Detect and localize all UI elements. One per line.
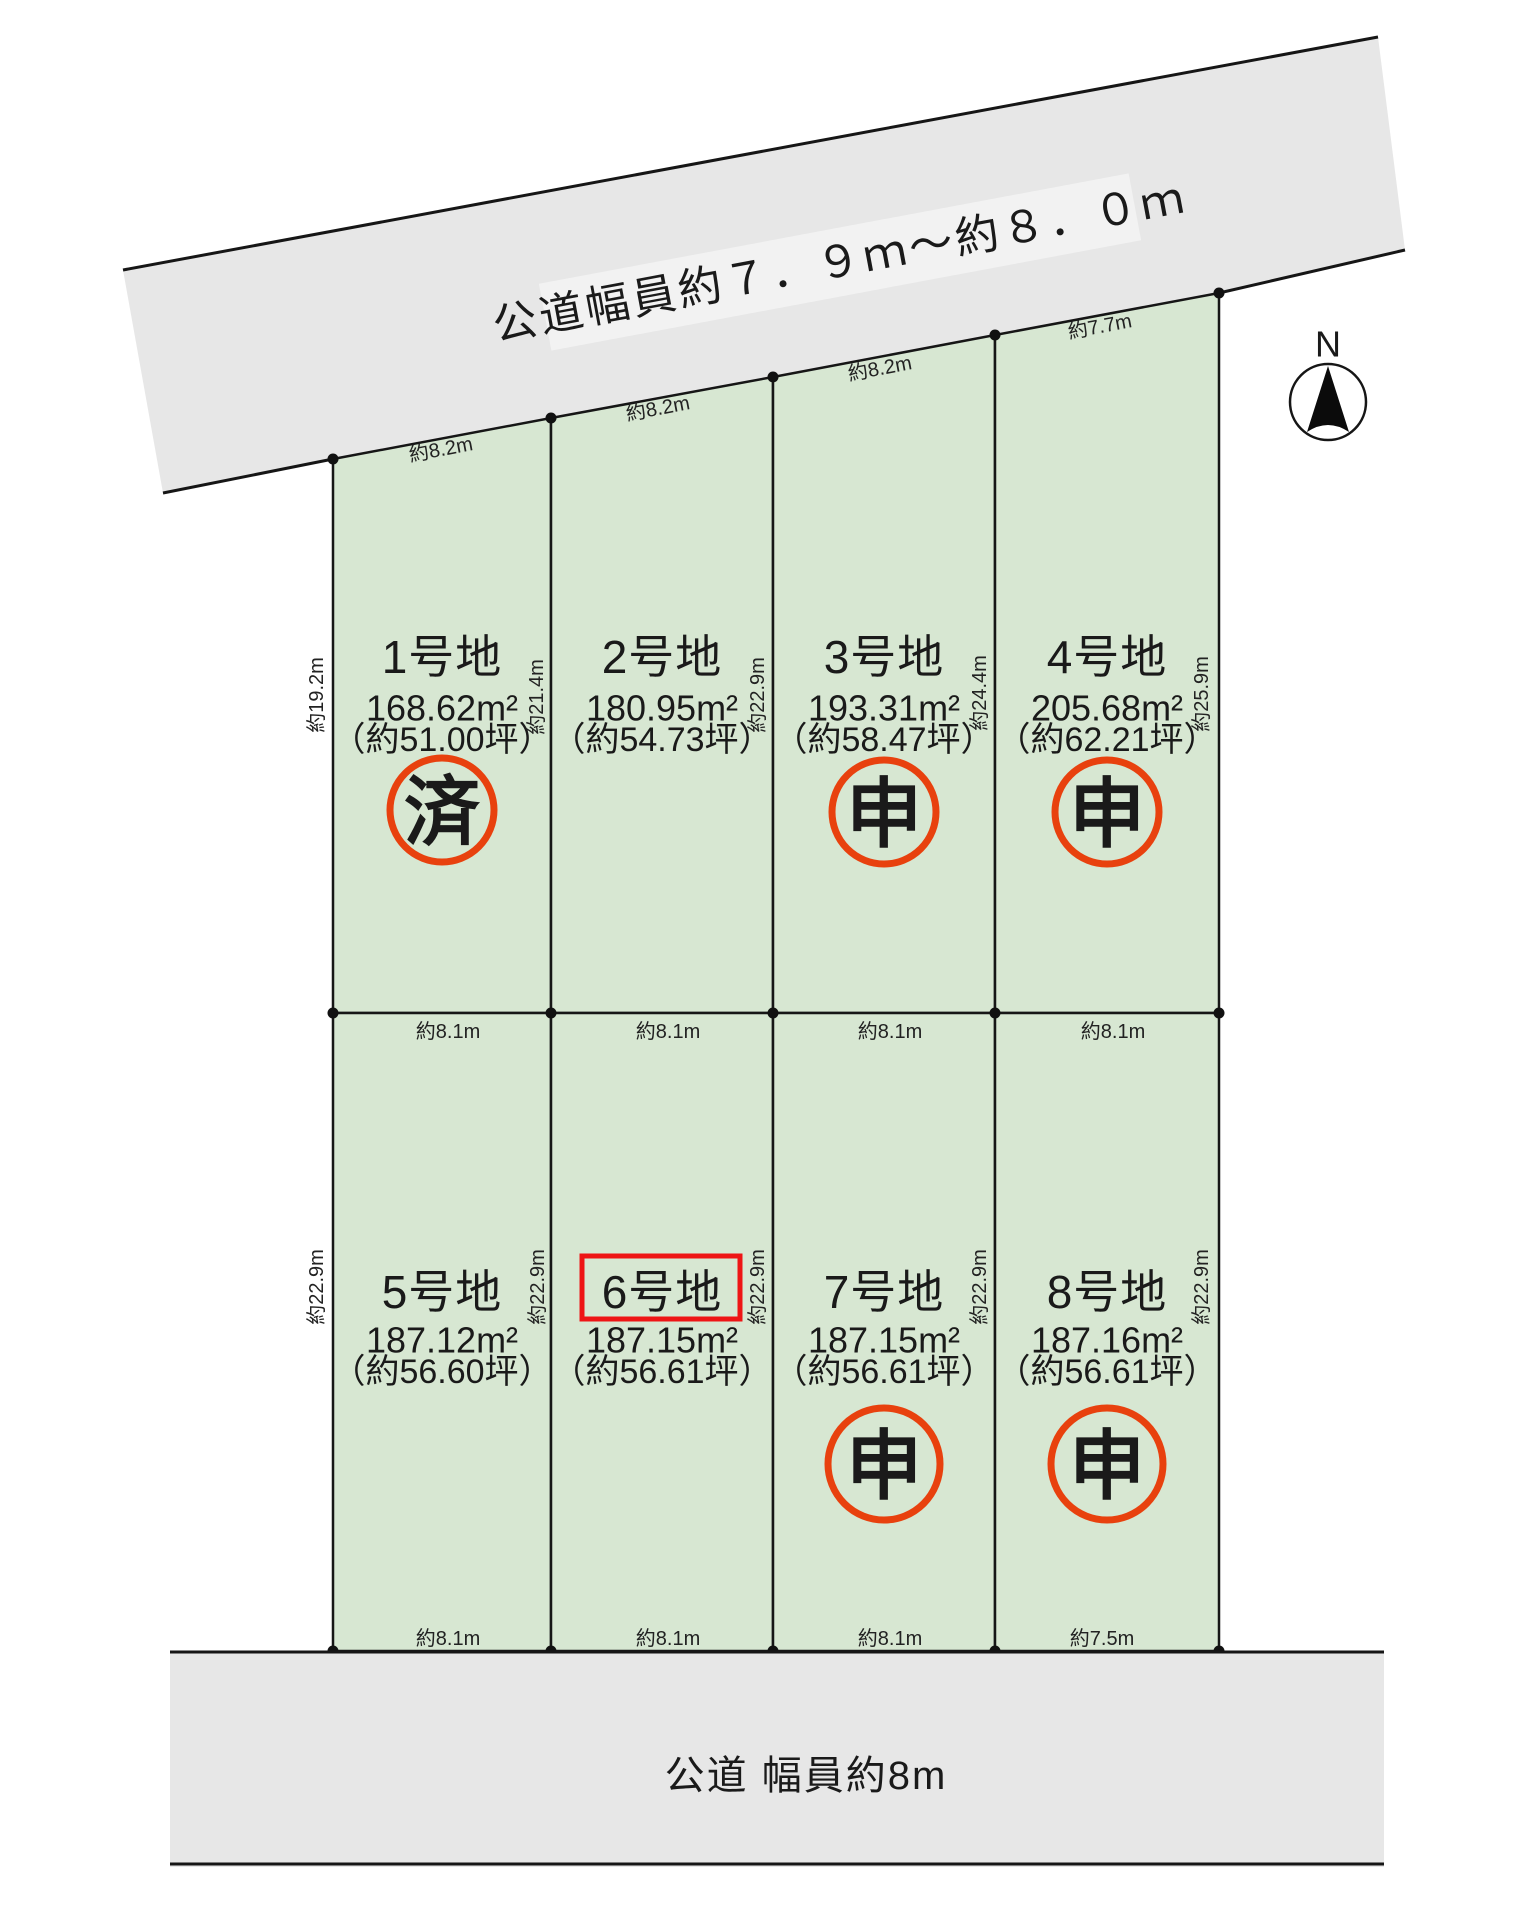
corner-dot xyxy=(990,1008,1001,1019)
corner-dot xyxy=(1214,1008,1225,1019)
bottom-road-label: 公道 幅員約8m xyxy=(665,1754,948,1798)
stamp-applied-char: 申 xyxy=(846,773,922,858)
plot-1-title: 1号地 xyxy=(382,631,503,683)
dimension-label-side-r1-1: 約19.2m xyxy=(305,657,328,733)
dimension-label-side-r2-5: 約22.9m xyxy=(1190,1249,1213,1325)
dimension-label-bottom-2: 約8.1m xyxy=(636,1627,700,1650)
plot-map-svg: 公道幅員約７．９ｍ～約８．０ｍ N 1号地 168.62m² （約51.00坪）… xyxy=(0,0,1528,1920)
plot-8-title: 8号地 xyxy=(1047,1266,1168,1318)
plot-3-title: 3号地 xyxy=(824,631,945,683)
plot-2-tsubo: （約54.73坪） xyxy=(551,721,772,759)
plot-region-5: 5号地 187.12m² （約56.60坪） xyxy=(331,1013,552,1651)
land-plot-diagram: 公道幅員約７．９ｍ～約８．０ｍ N 1号地 168.62m² （約51.00坪）… xyxy=(0,0,1528,1920)
plot-4-title: 4号地 xyxy=(1047,631,1168,683)
corner-dot xyxy=(1214,288,1225,299)
plot-region-1: 1号地 168.62m² （約51.00坪） 済 xyxy=(331,418,552,1013)
stamp-applied: 申 xyxy=(832,760,936,864)
dimension-label-side-r2-4: 約22.9m xyxy=(968,1249,991,1325)
plot-7-tsubo: （約56.61坪） xyxy=(773,1353,994,1391)
north-compass-icon: N xyxy=(1290,324,1366,441)
stamp-applied-char: 申 xyxy=(846,1425,922,1510)
plot-6-tsubo: （約56.61坪） xyxy=(551,1353,772,1391)
dimension-label-side-r1-3: 約22.9m xyxy=(746,657,769,733)
bottom-road: 公道 幅員約8m xyxy=(170,1651,1384,1867)
plot-3-tsubo: （約58.47坪） xyxy=(773,721,994,759)
dimension-label-side-r2-1: 約22.9m xyxy=(305,1249,328,1325)
corner-dot xyxy=(990,330,1001,341)
dimension-label-bottom-4: 約7.5m xyxy=(1070,1627,1134,1650)
dimension-label-side-r2-3: 約22.9m xyxy=(746,1249,769,1325)
corner-dot xyxy=(546,1008,557,1019)
plot-region-8: 8号地 187.16m² （約56.61坪） 申 xyxy=(995,1013,1219,1651)
corner-dot xyxy=(546,413,557,424)
plot-5-tsubo: （約56.60坪） xyxy=(331,1353,552,1391)
dimension-label-middle-2: 約8.1m xyxy=(636,1020,700,1043)
plot-region-7: 7号地 187.15m² （約56.61坪） 申 xyxy=(773,1013,995,1651)
stamp-sold-char: 済 xyxy=(404,771,481,856)
stamp-applied-char: 申 xyxy=(1069,1425,1145,1510)
plot-1-tsubo: （約51.00坪） xyxy=(331,721,552,759)
dimension-label-middle-1: 約8.1m xyxy=(416,1020,480,1043)
plot-5-title: 5号地 xyxy=(382,1266,503,1318)
dimension-label-bottom-3: 約8.1m xyxy=(858,1627,922,1650)
plot-2-title: 2号地 xyxy=(602,631,723,683)
plot-region-3: 3号地 193.31m² （約58.47坪） 申 xyxy=(773,335,995,1013)
corner-dot xyxy=(768,1008,779,1019)
dimension-label-middle-4: 約8.1m xyxy=(1081,1020,1145,1043)
corner-dot xyxy=(768,372,779,383)
plot-7-title: 7号地 xyxy=(824,1266,945,1318)
plot-region-4: 4号地 205.68m² （約62.21坪） 申 xyxy=(995,293,1219,1013)
dimension-label-side-r1-2: 約21.4m xyxy=(525,659,548,735)
stamp-applied-char: 申 xyxy=(1069,773,1145,858)
dimension-label-middle-3: 約8.1m xyxy=(858,1020,922,1043)
dimension-label-bottom-1: 約8.1m xyxy=(416,1627,480,1650)
plot-4-tsubo: （約62.21坪） xyxy=(996,721,1217,759)
plot-6-title: 6号地 xyxy=(602,1266,723,1318)
dimension-label-side-r1-5: 約25.9m xyxy=(1190,656,1213,732)
stamp-applied: 申 xyxy=(1055,760,1159,864)
stamp-sold: 済 xyxy=(390,758,494,862)
plot-region-6: 6号地 187.15m² （約56.61坪） xyxy=(551,1013,773,1651)
plot-8-tsubo: （約56.61坪） xyxy=(996,1353,1217,1391)
dimension-label-side-r1-4: 約24.4m xyxy=(968,655,991,731)
compass-north-label: N xyxy=(1315,324,1341,365)
dimension-label-side-r2-2: 約22.9m xyxy=(526,1249,549,1325)
corner-dot xyxy=(328,454,339,465)
corner-dot xyxy=(328,1008,339,1019)
plot-region-2: 2号地 180.95m² （約54.73坪） xyxy=(551,377,773,1013)
